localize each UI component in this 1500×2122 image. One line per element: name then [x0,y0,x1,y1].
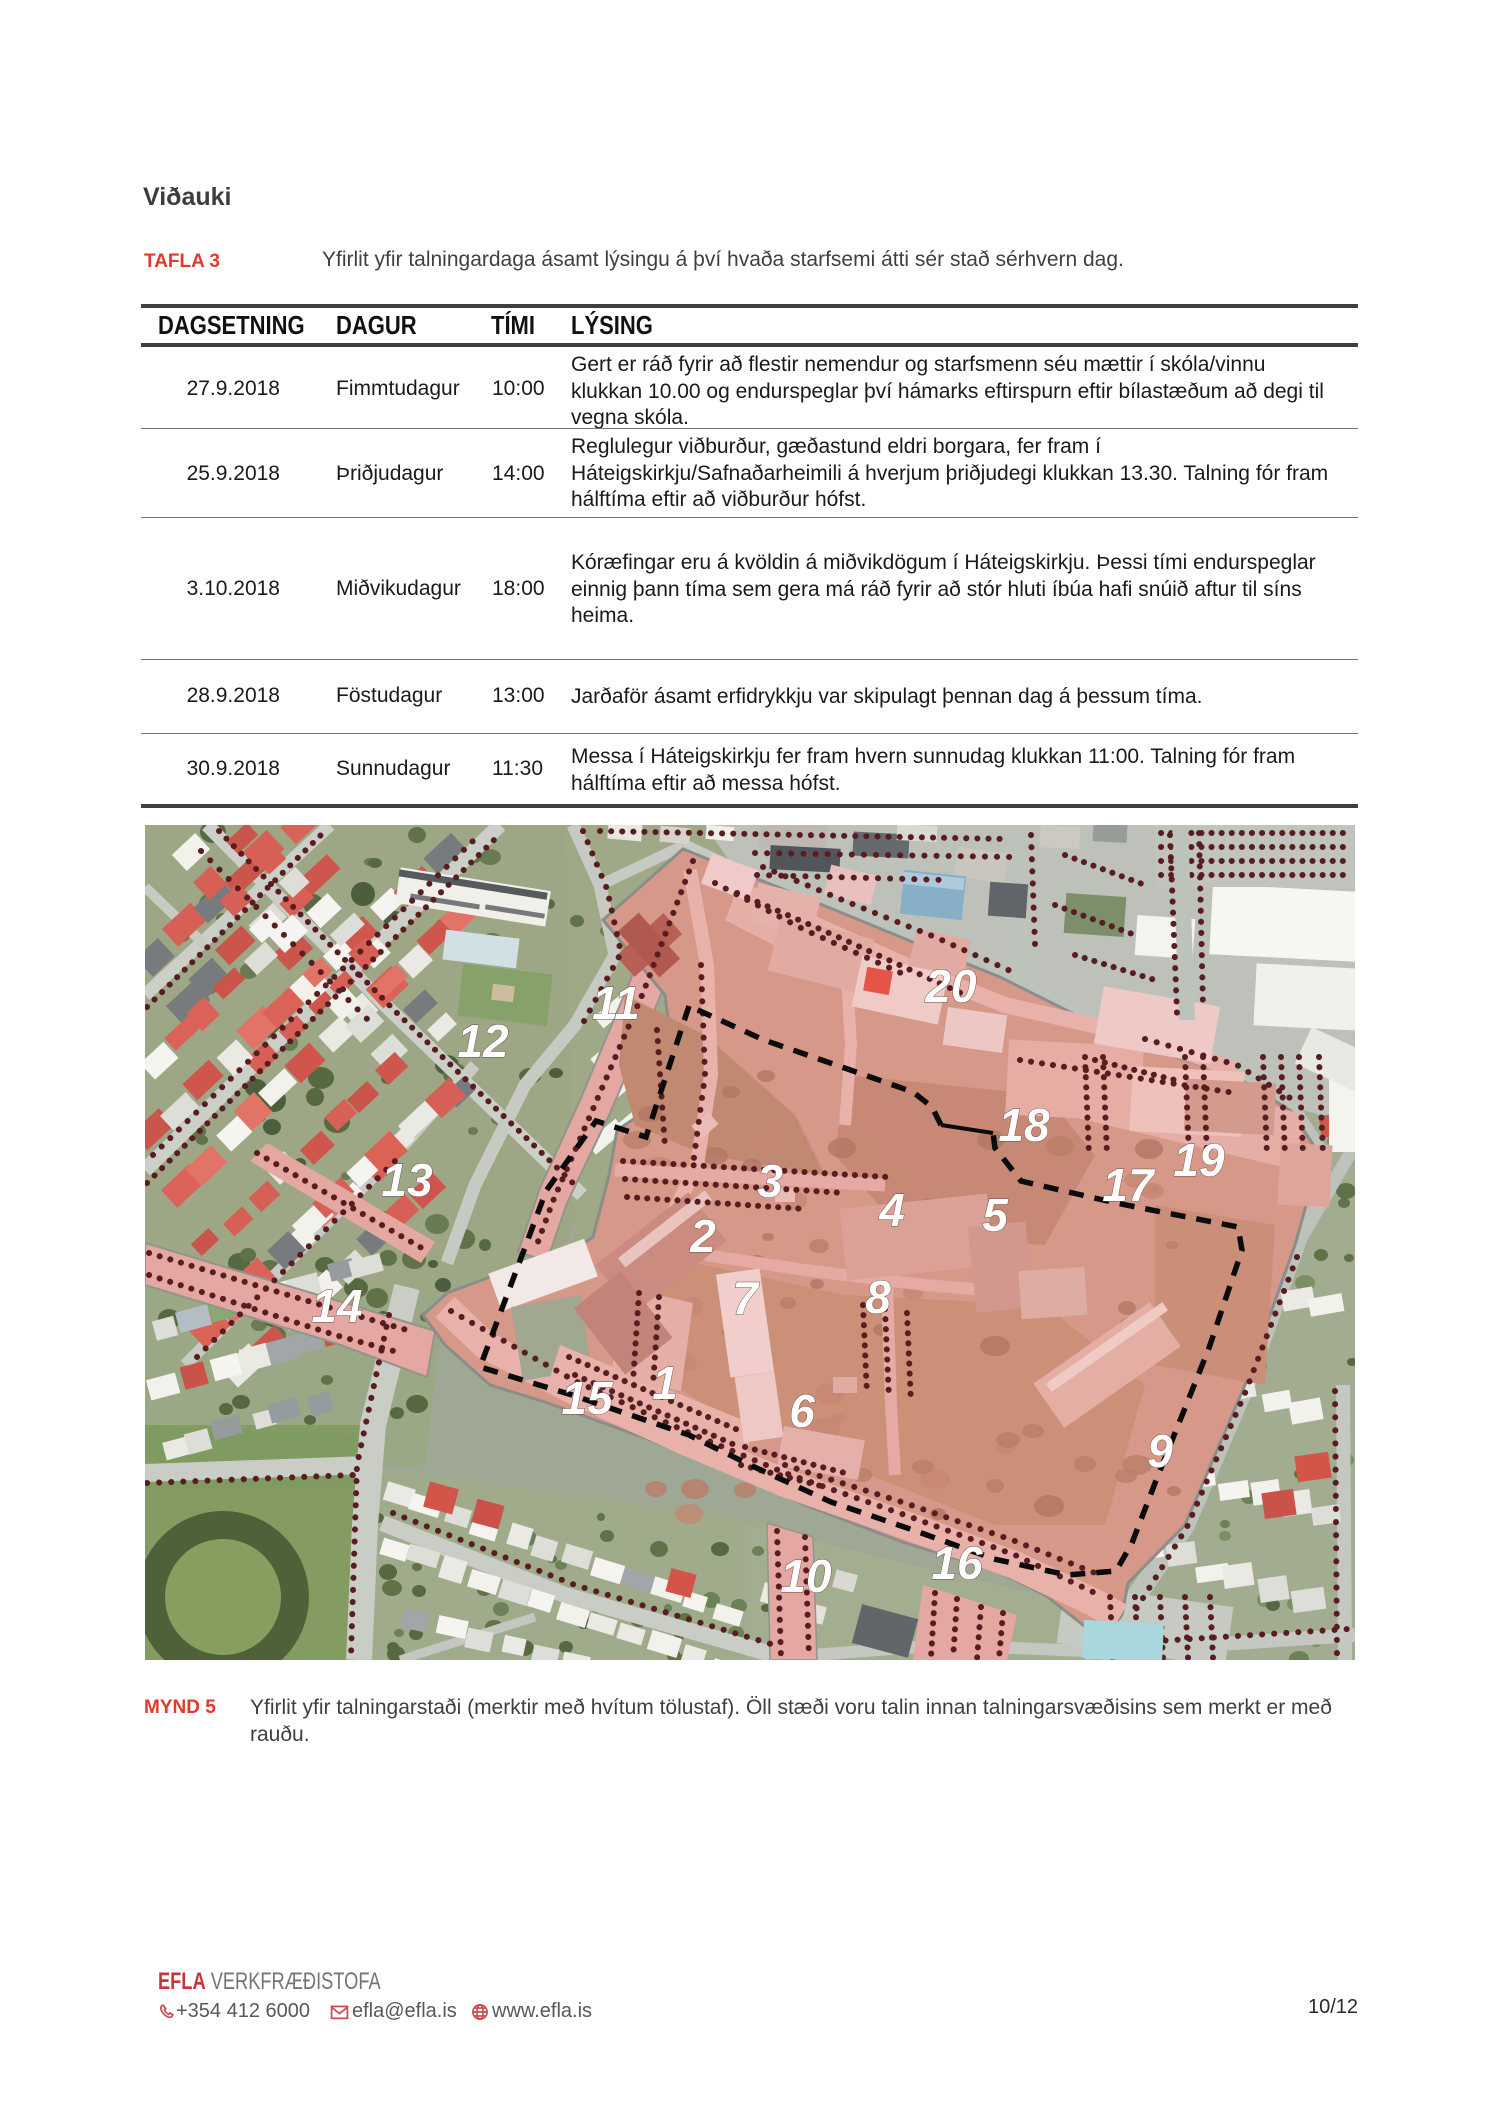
svg-text:19: 19 [1173,1134,1225,1186]
svg-text:9: 9 [1147,1425,1173,1477]
svg-text:11: 11 [592,977,640,1029]
svg-text:6: 6 [789,1385,815,1437]
svg-text:20: 20 [924,960,977,1012]
svg-text:12: 12 [457,1015,509,1067]
svg-text:8: 8 [865,1271,891,1323]
svg-text:2: 2 [689,1210,716,1262]
svg-text:18: 18 [998,1099,1050,1151]
svg-text:3: 3 [757,1155,783,1207]
svg-text:15: 15 [561,1372,614,1424]
svg-text:10: 10 [780,1550,832,1602]
svg-text:16: 16 [931,1537,983,1589]
svg-text:7: 7 [732,1272,760,1324]
svg-text:4: 4 [878,1184,905,1236]
svg-text:1: 1 [652,1357,678,1409]
svg-text:17: 17 [1102,1159,1156,1211]
svg-text:5: 5 [982,1189,1009,1241]
svg-text:14: 14 [311,1280,362,1332]
svg-text:13: 13 [381,1154,433,1206]
